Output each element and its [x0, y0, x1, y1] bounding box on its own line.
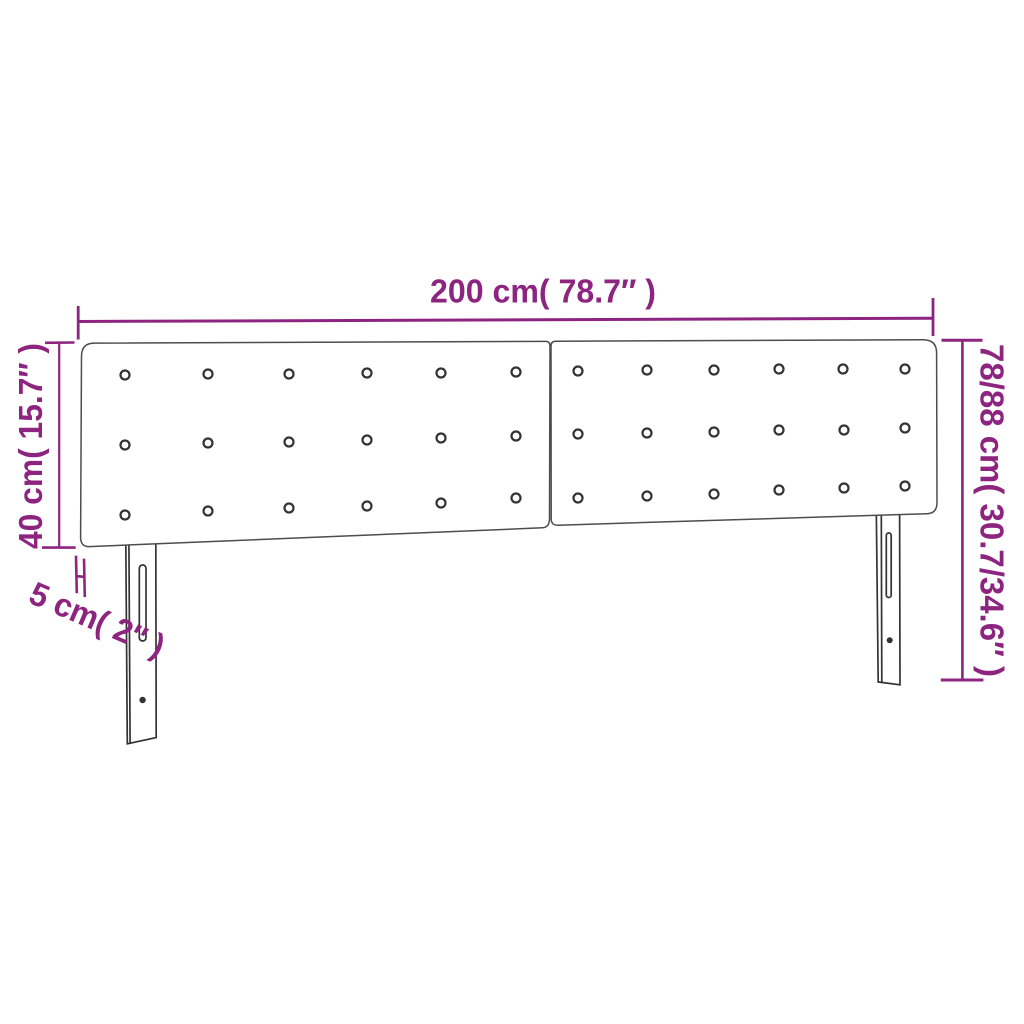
svg-text:78/88 cm( 30.7/34.6″ ): 78/88 cm( 30.7/34.6″ ) [974, 344, 1011, 677]
svg-text:40 cm( 15.7″ ): 40 cm( 15.7″ ) [12, 343, 49, 549]
svg-text:200 cm( 78.7″ ): 200 cm( 78.7″ ) [430, 273, 656, 310]
